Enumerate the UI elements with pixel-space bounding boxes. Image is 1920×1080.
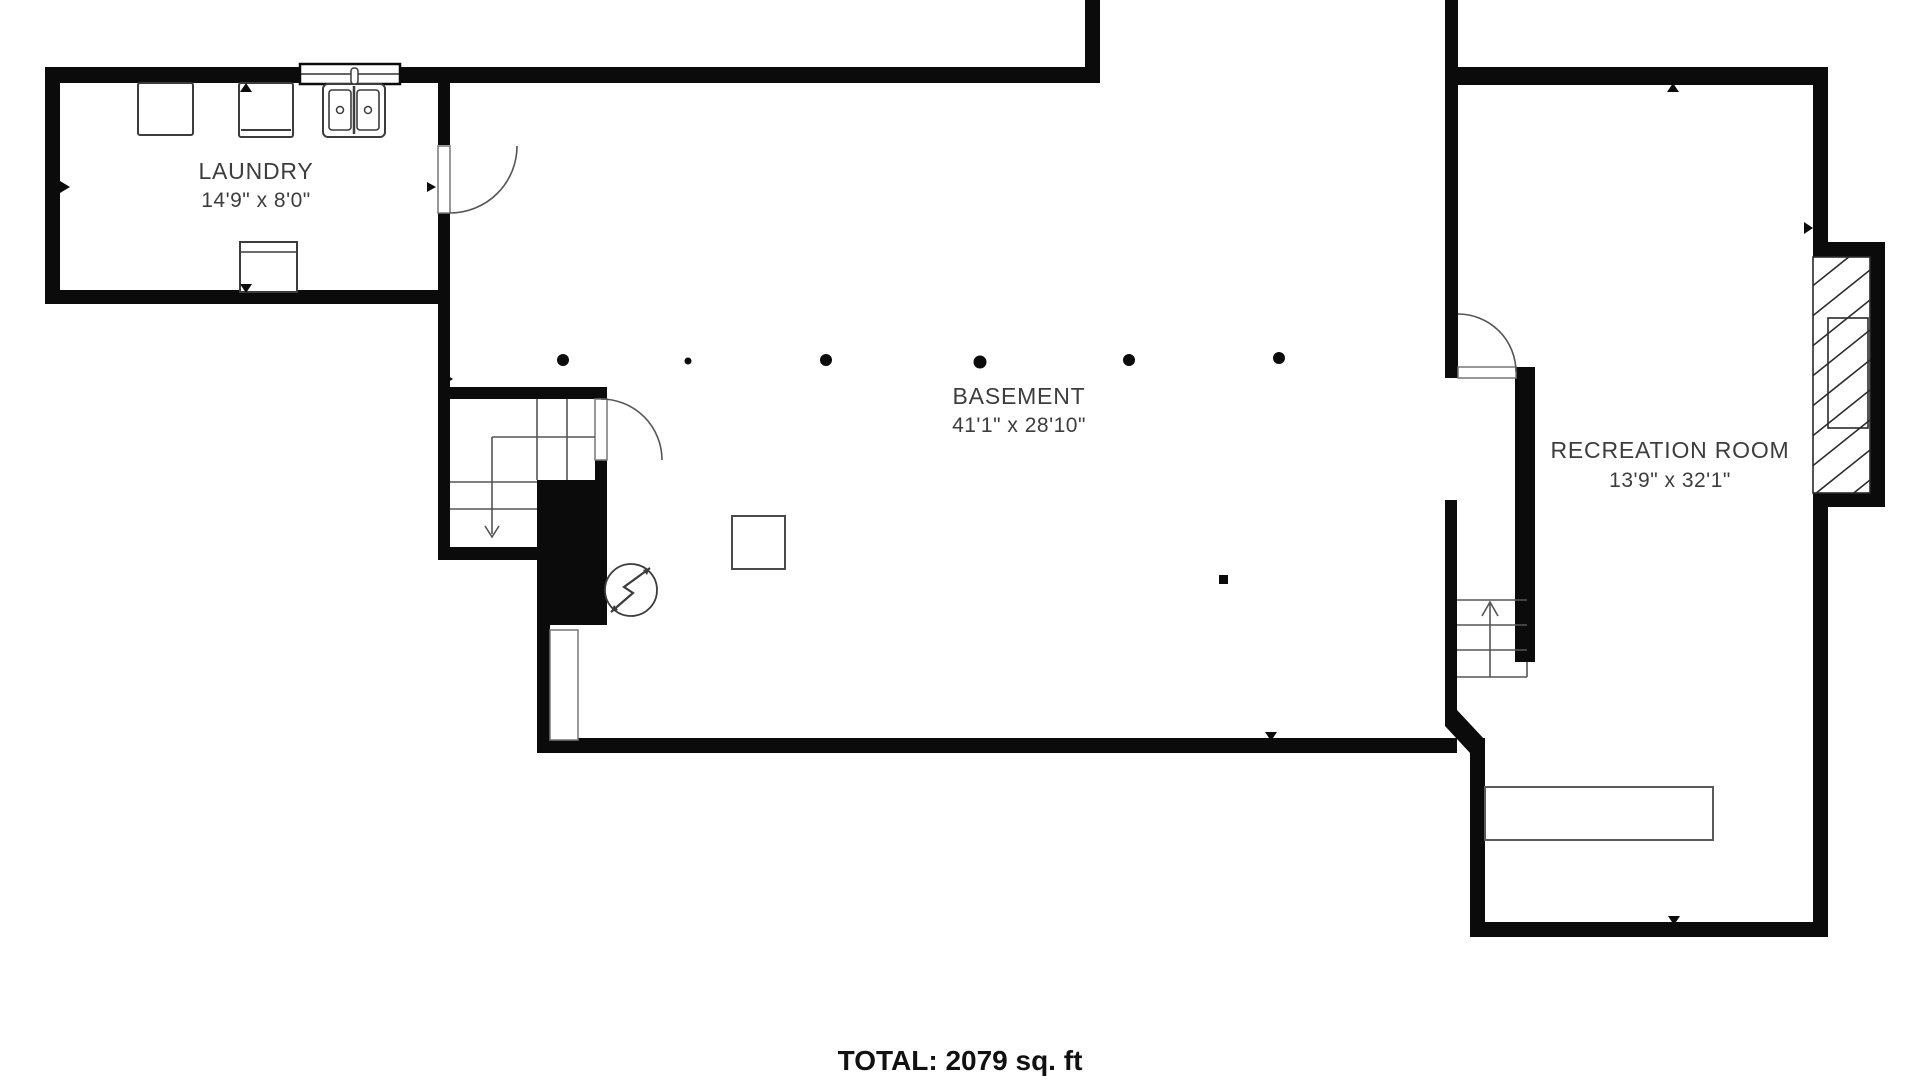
window-icon: [300, 64, 400, 84]
bench-rect: [1485, 787, 1713, 840]
laundry-door: [438, 146, 517, 213]
recreation-dimensions: 13'9" x 32'1": [1609, 469, 1731, 492]
laundry-name: LAUNDRY: [198, 158, 313, 184]
open-door-leaf: [550, 630, 578, 740]
room-laundry-label: LAUNDRY 14'9" x 8'0": [198, 158, 313, 212]
stair-door: [595, 399, 662, 460]
support-post-icon: [732, 516, 785, 569]
room-recreation-label: RECREATION ROOM 13'9" x 32'1": [1550, 437, 1789, 492]
corridor-door: [1458, 314, 1516, 378]
room-basement-label: BASEMENT 41'1" x 28'10": [952, 383, 1086, 437]
recreation-name: RECREATION ROOM: [1550, 437, 1789, 463]
washer-icon: [138, 83, 193, 135]
total-area-label: TOTAL: 2079 sq. ft: [838, 1045, 1083, 1076]
electrical-meter-icon: [605, 564, 657, 616]
laundry-dimensions: 14'9" x 8'0": [201, 189, 311, 212]
basement-name: BASEMENT: [953, 383, 1086, 409]
floor-plan-canvas: LAUNDRY 14'9" x 8'0" BASEMENT 41'1" x 28…: [0, 0, 1920, 1080]
basement-dimensions: 41'1" x 28'10": [952, 414, 1086, 437]
support-columns: [557, 352, 1285, 584]
